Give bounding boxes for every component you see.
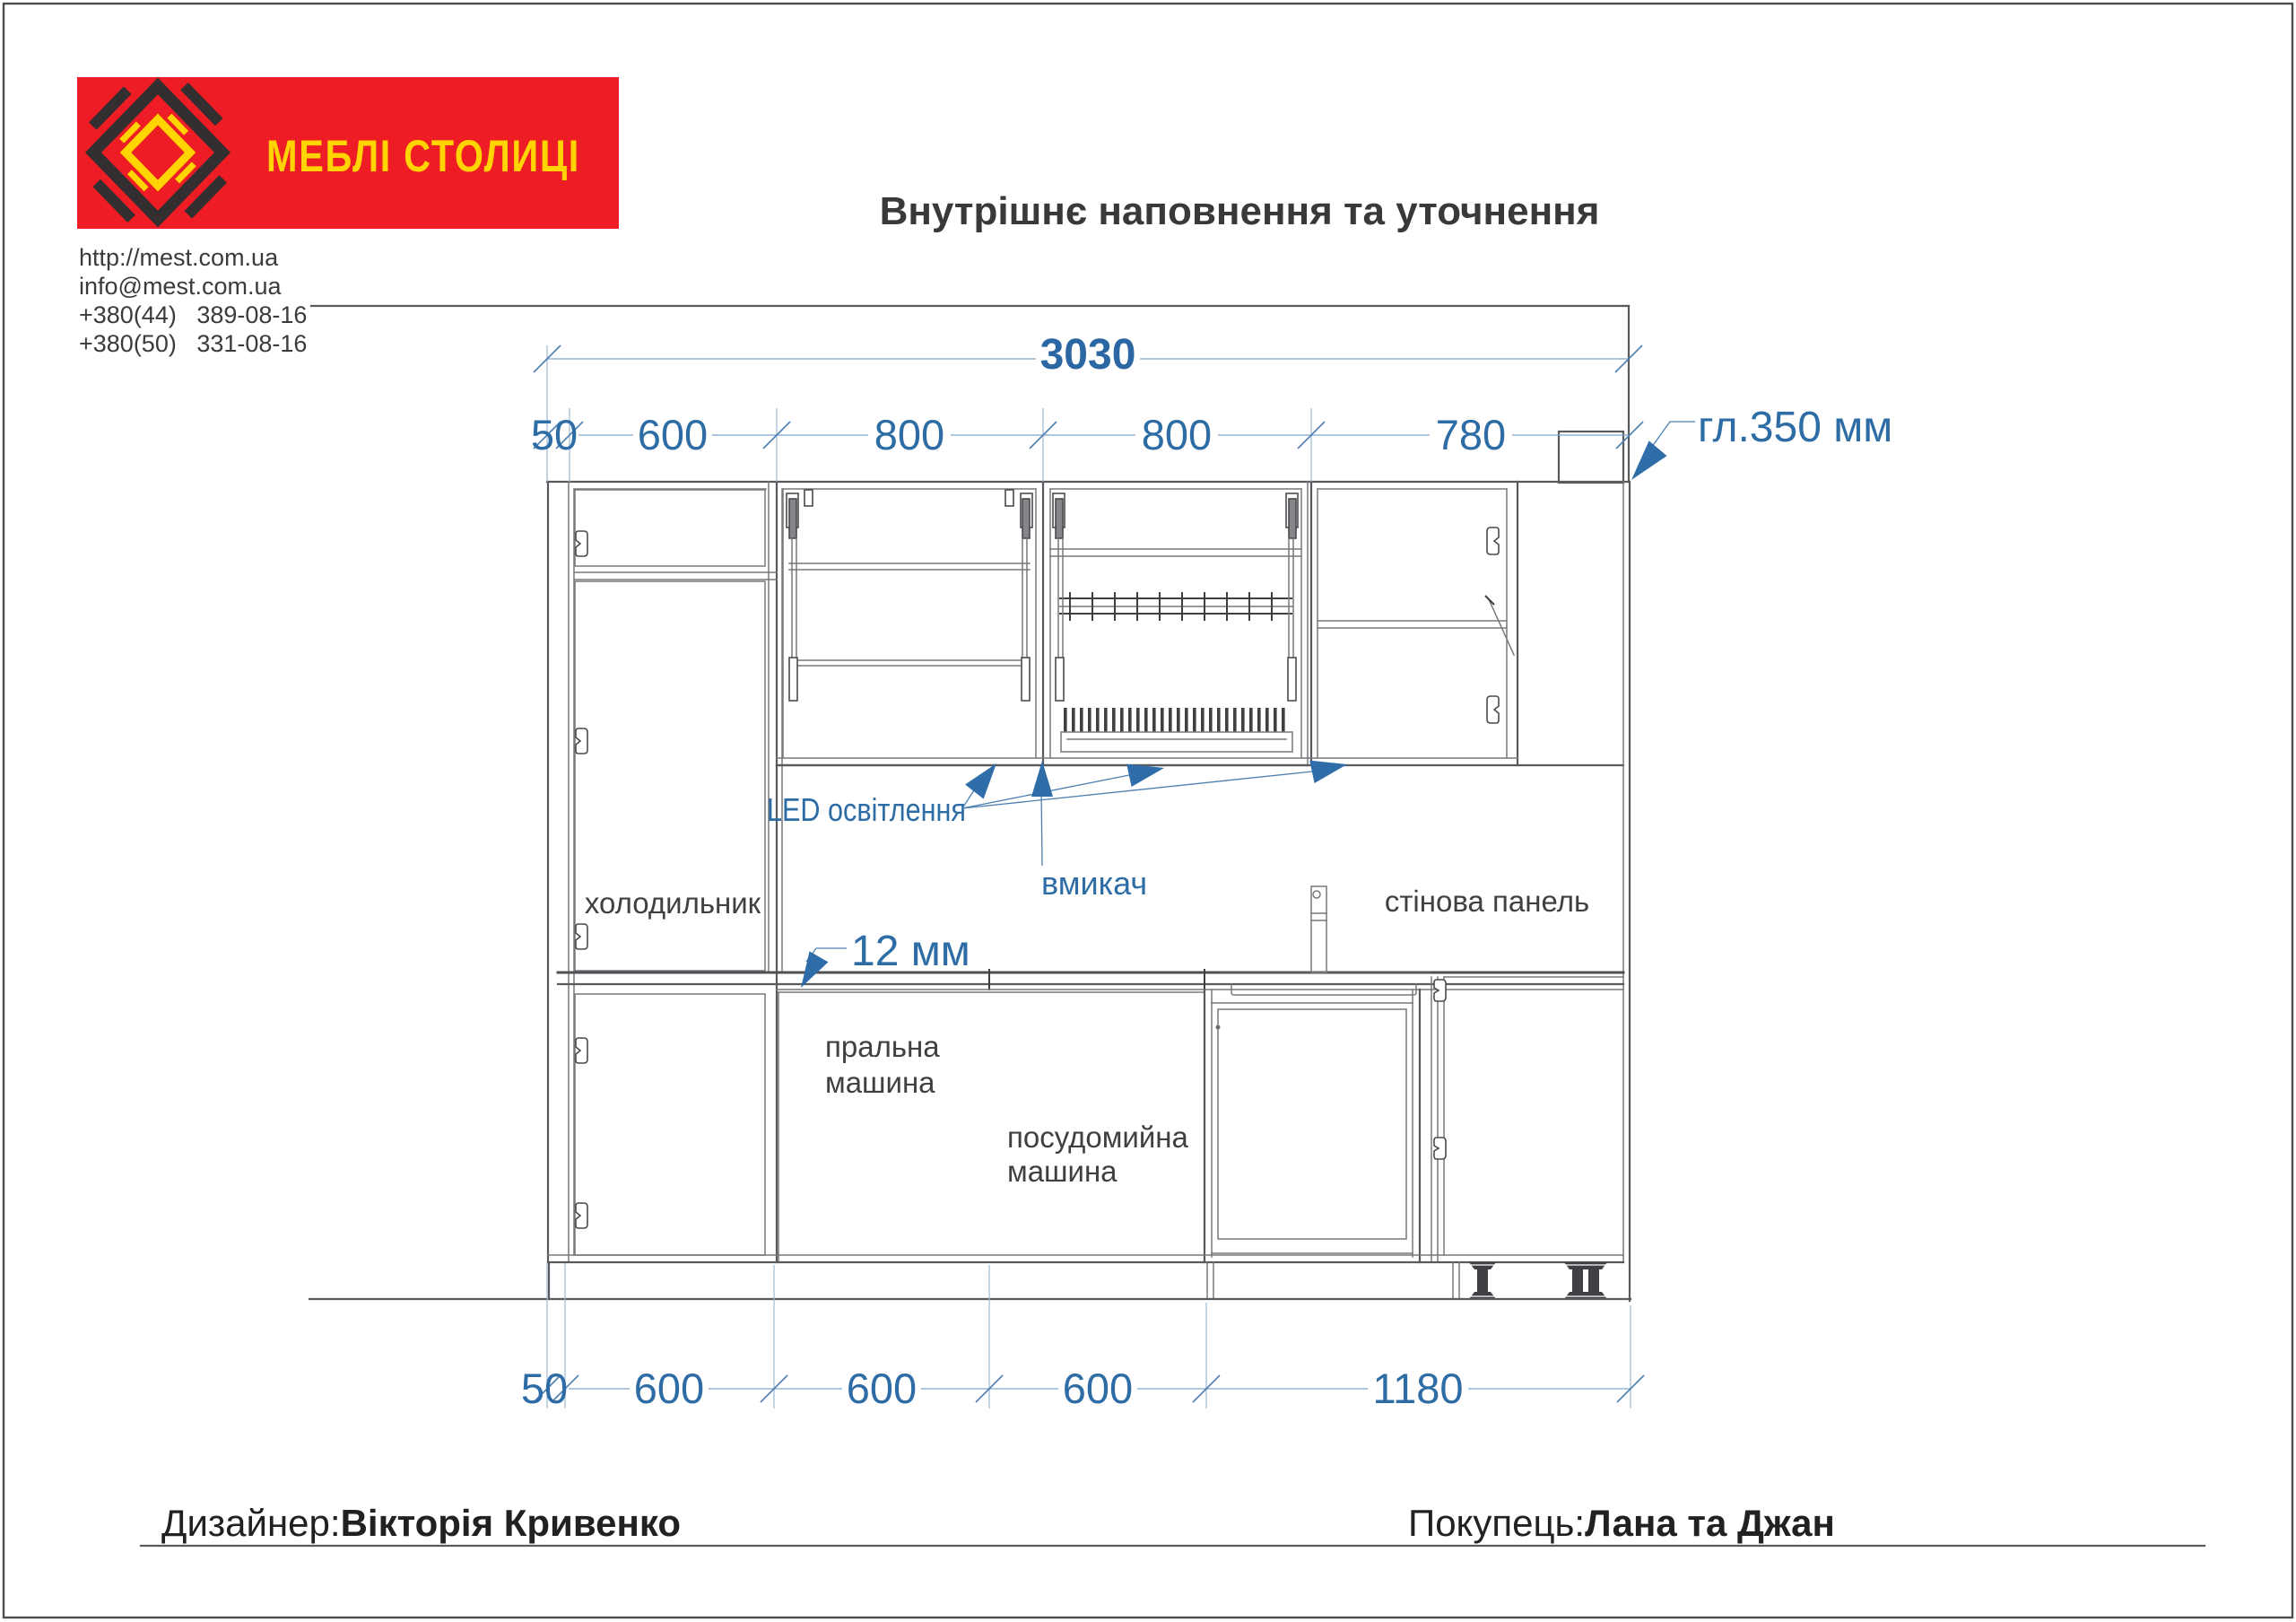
svg-text:info@mest.com.ua: info@mest.com.ua xyxy=(79,273,282,300)
svg-text:Покупець:Лана та Джан: Покупець:Лана та Джан xyxy=(1408,1502,1835,1544)
svg-text:Дизайнер:Вікторія Кривенко: Дизайнер:Вікторія Кривенко xyxy=(161,1502,681,1544)
svg-text:1180: 1180 xyxy=(1372,1365,1463,1412)
svg-text:600: 600 xyxy=(634,1365,704,1412)
svg-text:50: 50 xyxy=(531,411,578,458)
svg-text:машина: машина xyxy=(825,1066,935,1099)
svg-text:600: 600 xyxy=(638,411,708,458)
svg-text:пральна: пральна xyxy=(825,1030,940,1063)
svg-text:12 мм: 12 мм xyxy=(851,928,970,975)
svg-text:вмикач: вмикач xyxy=(1041,865,1147,902)
svg-text:гл.350 мм: гл.350 мм xyxy=(1698,404,1892,451)
svg-text:+380(44) 389-08-16: +380(44) 389-08-16 xyxy=(79,301,307,328)
svg-text:http://mest.com.ua: http://mest.com.ua xyxy=(79,244,279,271)
svg-text:стінова панель: стінова панель xyxy=(1385,885,1589,918)
svg-text:600: 600 xyxy=(847,1365,917,1412)
svg-text:800: 800 xyxy=(874,411,944,458)
svg-text:холодильник: холодильник xyxy=(585,886,761,920)
svg-text:LED освітлення: LED освітлення xyxy=(767,791,966,828)
svg-text:МЕБЛІ СТОЛИЦІ: МЕБЛІ СТОЛИЦІ xyxy=(266,131,580,181)
svg-text:Внутрішнє наповнення та уточне: Внутрішнє наповнення та уточнення xyxy=(880,189,1600,233)
svg-text:посудомийна: посудомийна xyxy=(1007,1121,1189,1154)
svg-text:800: 800 xyxy=(1142,411,1212,458)
svg-text:600: 600 xyxy=(1063,1365,1133,1412)
svg-text:3030: 3030 xyxy=(1040,331,1136,379)
svg-text:780: 780 xyxy=(1436,411,1506,458)
svg-text:50: 50 xyxy=(521,1365,568,1412)
svg-text:машина: машина xyxy=(1007,1155,1118,1188)
svg-text:+380(50) 331-08-16: +380(50) 331-08-16 xyxy=(79,330,307,357)
